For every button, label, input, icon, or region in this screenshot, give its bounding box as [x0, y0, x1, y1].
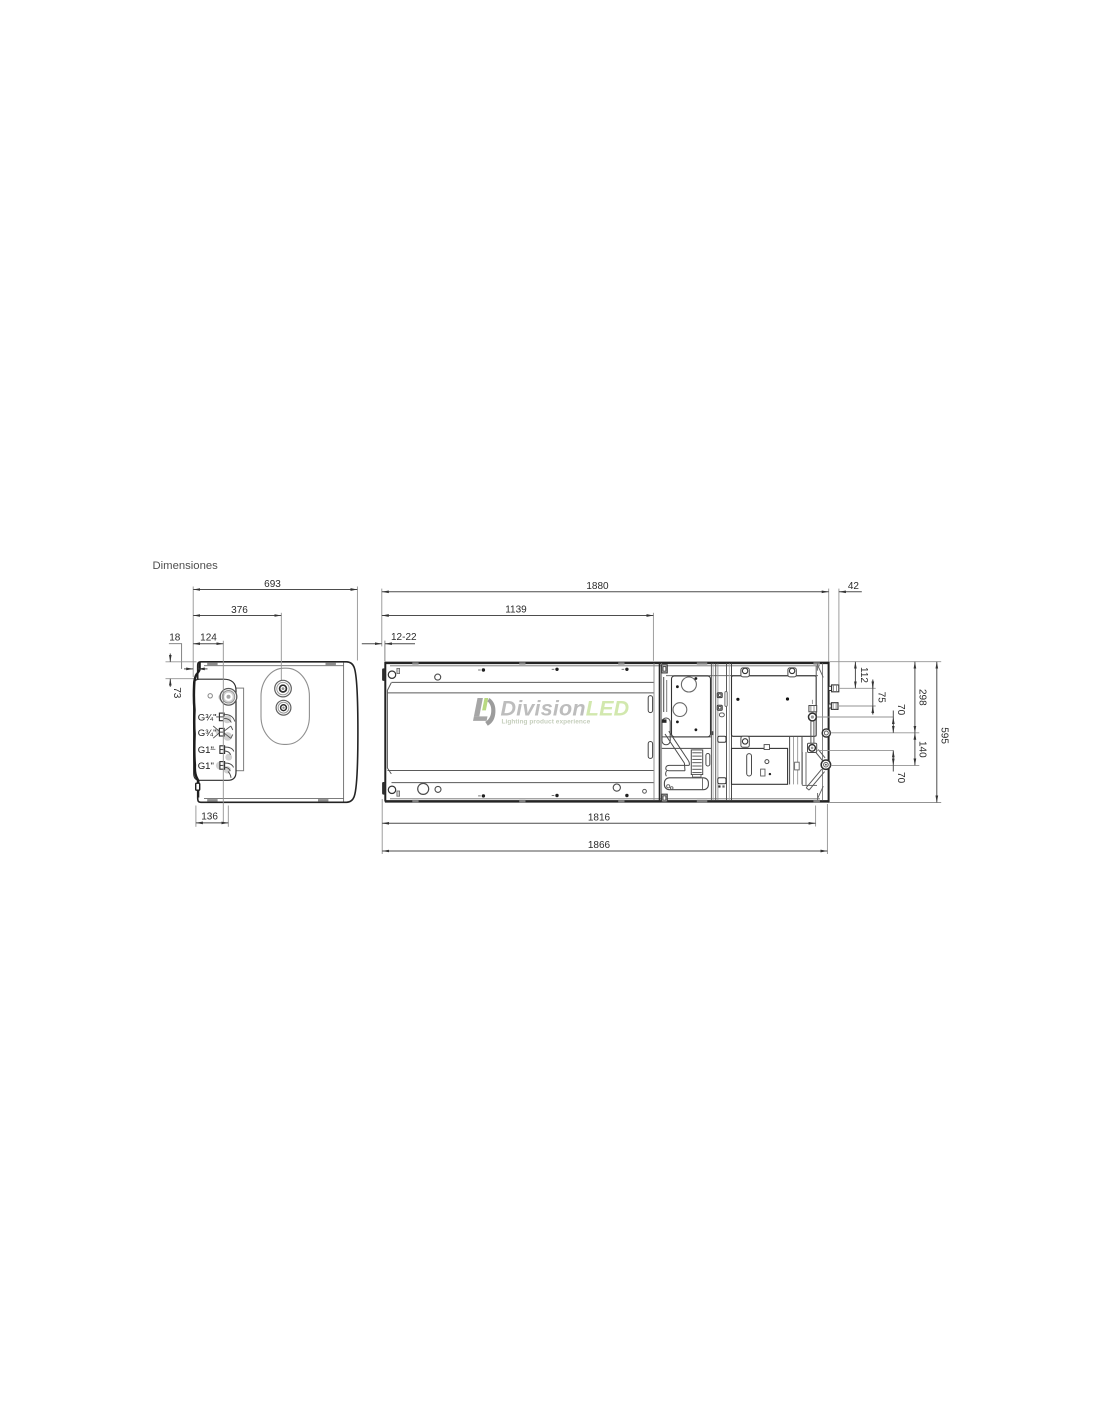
svg-text:595: 595 — [939, 727, 950, 744]
svg-text:1866: 1866 — [588, 840, 611, 851]
svg-text:Lighting product experience: Lighting product experience — [502, 719, 591, 726]
svg-text:73: 73 — [171, 687, 182, 699]
svg-text:Dimensiones: Dimensiones — [153, 560, 219, 572]
svg-text:376: 376 — [231, 605, 248, 616]
svg-text:70: 70 — [895, 704, 906, 716]
svg-text:75: 75 — [875, 692, 886, 704]
svg-text:12-22: 12-22 — [391, 632, 417, 643]
svg-text:G1": G1" — [198, 745, 214, 756]
svg-text:G1": G1" — [198, 761, 214, 772]
svg-text:70: 70 — [895, 772, 906, 784]
svg-text:G¾": G¾" — [198, 728, 217, 739]
svg-text:298: 298 — [917, 689, 928, 706]
svg-text:42: 42 — [848, 581, 860, 592]
svg-text:112: 112 — [858, 667, 869, 683]
svg-text:693: 693 — [264, 579, 281, 590]
svg-text:136: 136 — [201, 812, 218, 823]
svg-text:DivisionLED: DivisionLED — [501, 696, 630, 720]
svg-text:1816: 1816 — [588, 812, 611, 823]
svg-text:140: 140 — [917, 741, 928, 758]
svg-text:1880: 1880 — [586, 581, 609, 592]
svg-text:1139: 1139 — [505, 605, 527, 616]
svg-text:G¾": G¾" — [198, 713, 217, 724]
svg-text:18: 18 — [169, 633, 181, 644]
svg-text:124: 124 — [200, 633, 217, 644]
